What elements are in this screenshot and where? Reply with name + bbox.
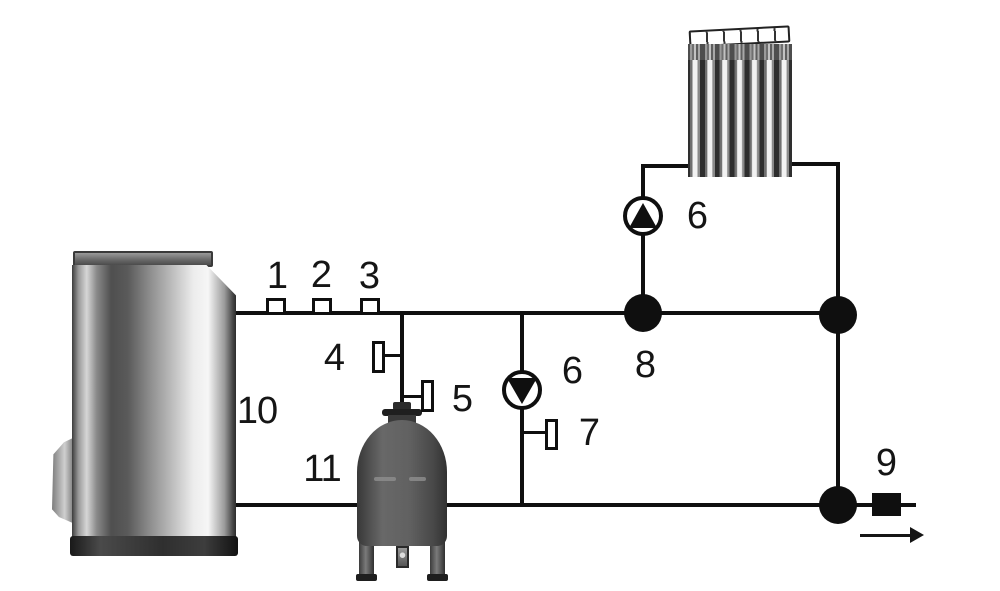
label-6-radiator-pump: 6 <box>687 197 707 235</box>
riser-pipe-right <box>836 164 840 507</box>
radiator-pump <box>623 196 663 236</box>
sensor-symbol-3 <box>360 298 380 315</box>
junction-node-bottom-right <box>819 486 857 524</box>
label-8: 8 <box>635 346 655 384</box>
tank-highlight-right <box>409 477 426 481</box>
outlet-stub-right <box>900 503 916 507</box>
valve5-stub <box>402 395 423 398</box>
tank-foot-right <box>427 574 448 581</box>
valve4-stub <box>384 354 402 357</box>
sensor-symbol-2 <box>312 298 332 315</box>
outlet-stub-left <box>855 503 873 507</box>
radiator-outlet-pipe <box>790 162 840 166</box>
tank-highlight-left <box>374 477 396 481</box>
radiator-pump-riser <box>641 164 645 315</box>
expansion-tank-body <box>357 420 447 546</box>
expansion-tank-drop <box>400 313 404 413</box>
outlet-fitting-9 <box>872 493 901 516</box>
circuit-pump <box>502 370 542 410</box>
radiator-inlet-pipe <box>641 164 693 168</box>
label-4: 4 <box>324 339 344 377</box>
label-10: 10 <box>237 392 277 430</box>
boiler-base <box>70 536 238 556</box>
sensor-symbol-1 <box>266 298 286 315</box>
pump-up-triangle-icon <box>629 203 657 228</box>
pump-down-triangle-icon <box>507 378 537 404</box>
junction-node-top-right <box>819 296 857 334</box>
tank-bottom-fitting <box>396 546 409 568</box>
label-1: 1 <box>267 257 287 295</box>
label-6-circuit-pump: 6 <box>562 352 582 390</box>
label-11: 11 <box>303 450 340 488</box>
boiler-top-cap <box>73 251 213 267</box>
return-pipe-bottom <box>235 503 838 507</box>
label-7: 7 <box>579 414 599 452</box>
schematic-canvas: 1 2 3 4 5 6 6 7 8 9 10 11 <box>0 0 1000 591</box>
flow-direction-arrowhead-icon <box>910 527 924 543</box>
boiler-body <box>72 265 236 541</box>
label-5: 5 <box>452 380 472 418</box>
flow-direction-arrow <box>860 534 912 537</box>
label-3: 3 <box>359 257 379 295</box>
radiator <box>688 24 792 177</box>
label-2: 2 <box>311 256 331 294</box>
valve7-stub <box>522 431 547 434</box>
junction-node-8 <box>624 294 662 332</box>
tank-foot-left <box>356 574 377 581</box>
valve-symbol-4 <box>372 341 385 373</box>
boiler-side-bracket <box>52 437 75 524</box>
valve-symbol-7 <box>545 419 558 450</box>
radiator-fins <box>688 60 792 177</box>
valve-symbol-5 <box>421 380 434 412</box>
circuit-pump-drop <box>520 313 524 507</box>
label-9: 9 <box>876 444 896 482</box>
